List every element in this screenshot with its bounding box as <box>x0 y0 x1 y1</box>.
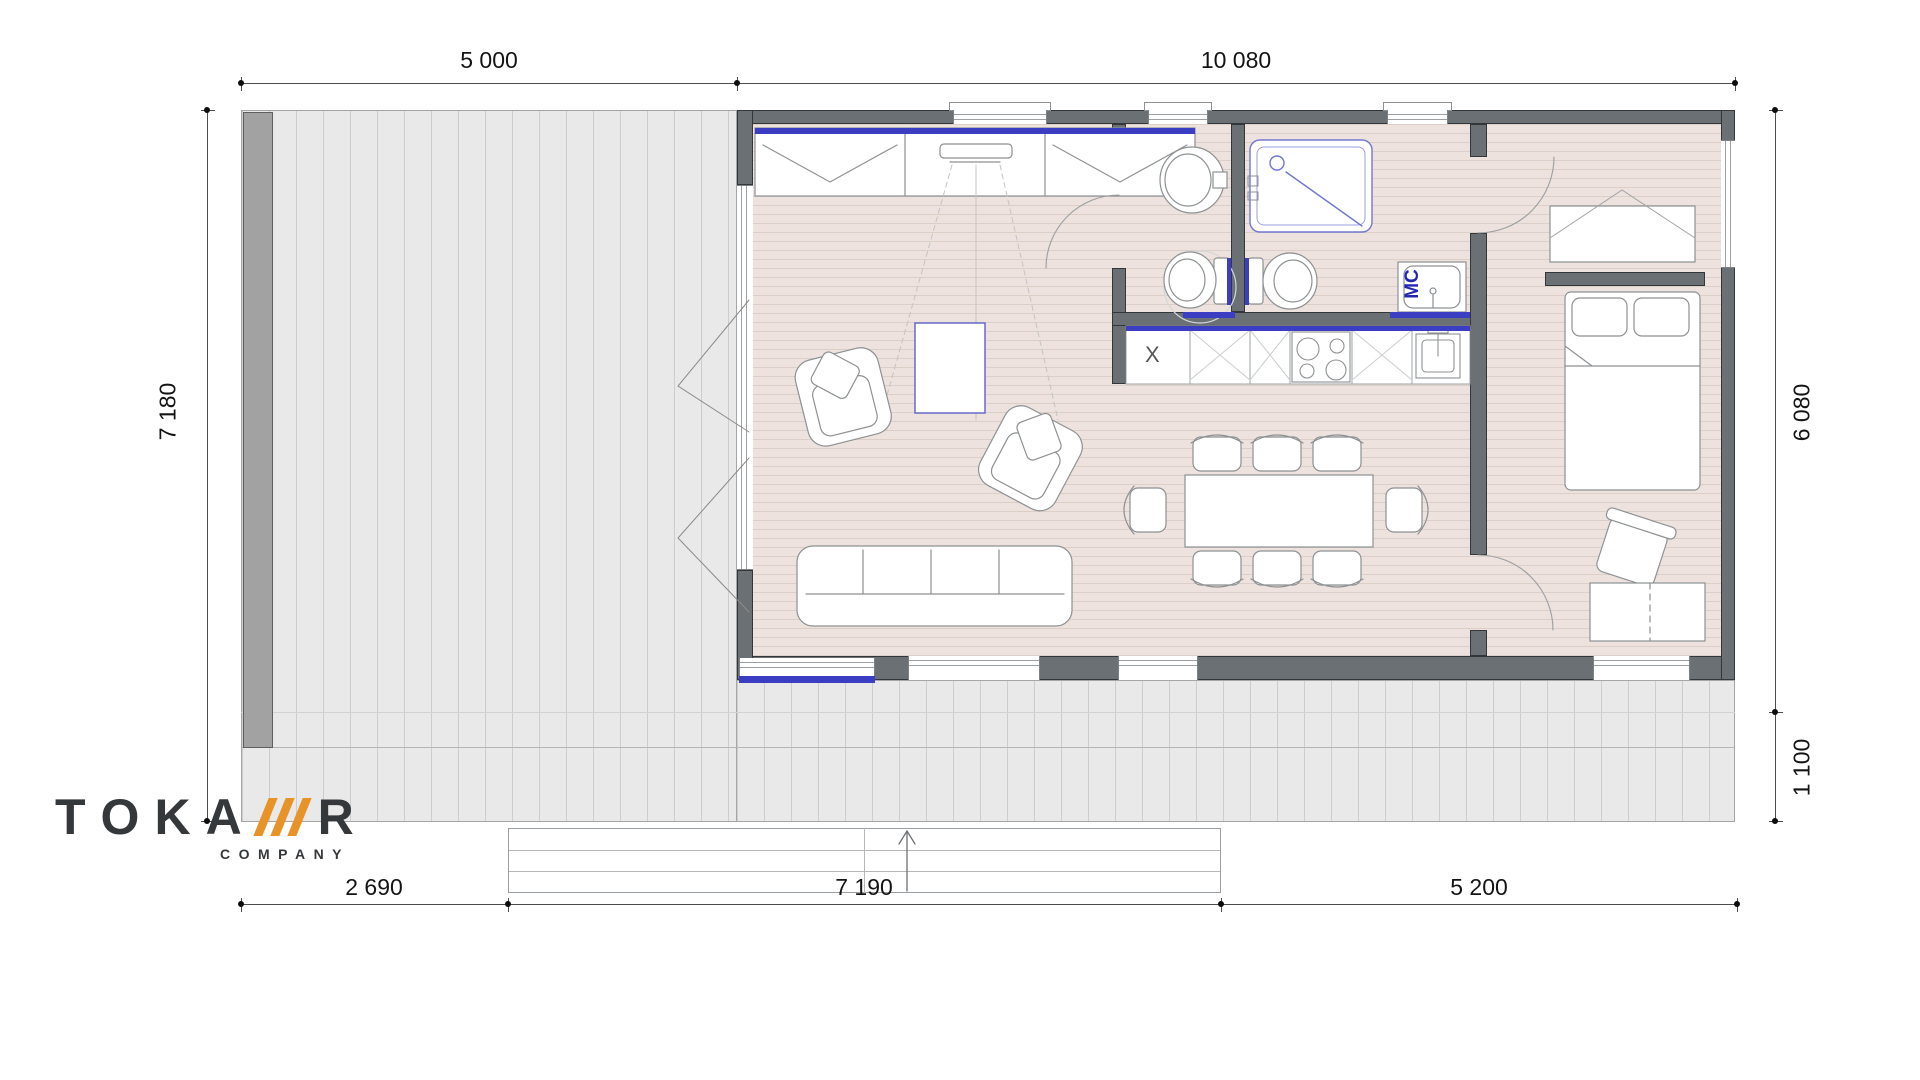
dimension-dot <box>1772 107 1778 113</box>
dimension-dot <box>1732 80 1738 86</box>
ensuite-toilet <box>1248 253 1317 309</box>
washing-machine-label: MC <box>1403 257 1423 311</box>
accent-strip-tv-unit <box>755 128 1195 134</box>
dimension-dot <box>238 901 244 907</box>
kitchen-appliance-label: X <box>1145 342 1160 368</box>
logo-letter: A <box>206 792 242 842</box>
wc-sink <box>1160 147 1227 213</box>
logo-letter: R <box>318 792 354 842</box>
dimension-dot <box>1772 818 1778 824</box>
bed <box>1565 292 1700 490</box>
dimension-dot <box>505 901 511 907</box>
dimension-label-bottom-right: 5 200 <box>1399 874 1559 901</box>
brand-logo: T O K A R <box>55 792 354 842</box>
door-arc-ensuite <box>1478 157 1554 233</box>
dimension-label-left-total: 7 180 <box>155 332 182 492</box>
accent-strip-wc-divider-right <box>1245 258 1249 305</box>
dimension-dot <box>1218 901 1224 907</box>
dimension-label-top-building: 10 080 <box>1156 47 1316 74</box>
coffee-table <box>915 323 985 413</box>
dimension-line-bottom <box>241 904 1737 905</box>
dimension-dot <box>1734 901 1740 907</box>
accent-strip-south-slider <box>739 676 875 683</box>
dimension-dot <box>734 80 740 86</box>
dimension-label-bottom-left: 2 690 <box>294 874 454 901</box>
logo-letter: O <box>101 792 140 842</box>
dimension-dot <box>204 107 210 113</box>
accent-strip-bath-wall-2 <box>1390 312 1470 318</box>
dimension-dot <box>1772 709 1778 715</box>
dimension-label-right-depth: 6 080 <box>1789 333 1816 493</box>
kitchen-sink <box>1416 327 1460 378</box>
armchair-2 <box>972 394 1091 517</box>
accent-strip-wc-divider-left <box>1227 258 1231 305</box>
dimension-label-right-step: 1 100 <box>1789 688 1816 848</box>
dimension-dot <box>238 80 244 86</box>
logo-letter: T <box>55 792 86 842</box>
logo-subtitle: COMPANY <box>220 846 350 862</box>
dimension-line-left <box>207 110 208 821</box>
door-arc-bedroom <box>1478 555 1553 630</box>
dining-table <box>1185 475 1373 547</box>
stove <box>1292 332 1350 382</box>
sofa <box>797 546 1072 626</box>
dimension-label-bottom-center: 7 190 <box>784 874 944 901</box>
accent-strip-bath-wall-1 <box>1183 312 1235 318</box>
door-arc-wc <box>1046 195 1119 268</box>
logo-letter: K <box>154 792 190 842</box>
bifold-swing-icon <box>678 300 749 612</box>
floor-plan: MC X 5 000 10 080 2 690 7 190 5 200 7 18… <box>0 0 1920 1080</box>
bedroom-wardrobe <box>1550 190 1695 262</box>
accent-strip-kitchen <box>1126 326 1470 331</box>
dimension-label-top-deck: 5 000 <box>409 47 569 74</box>
furniture-layer <box>0 0 1920 1080</box>
shower <box>1248 140 1372 232</box>
dimension-line-top <box>241 83 1737 84</box>
armchair-1 <box>790 338 895 450</box>
desk-chair <box>1589 507 1677 590</box>
desk <box>1590 583 1705 641</box>
tv-wall-unit <box>755 128 1195 196</box>
